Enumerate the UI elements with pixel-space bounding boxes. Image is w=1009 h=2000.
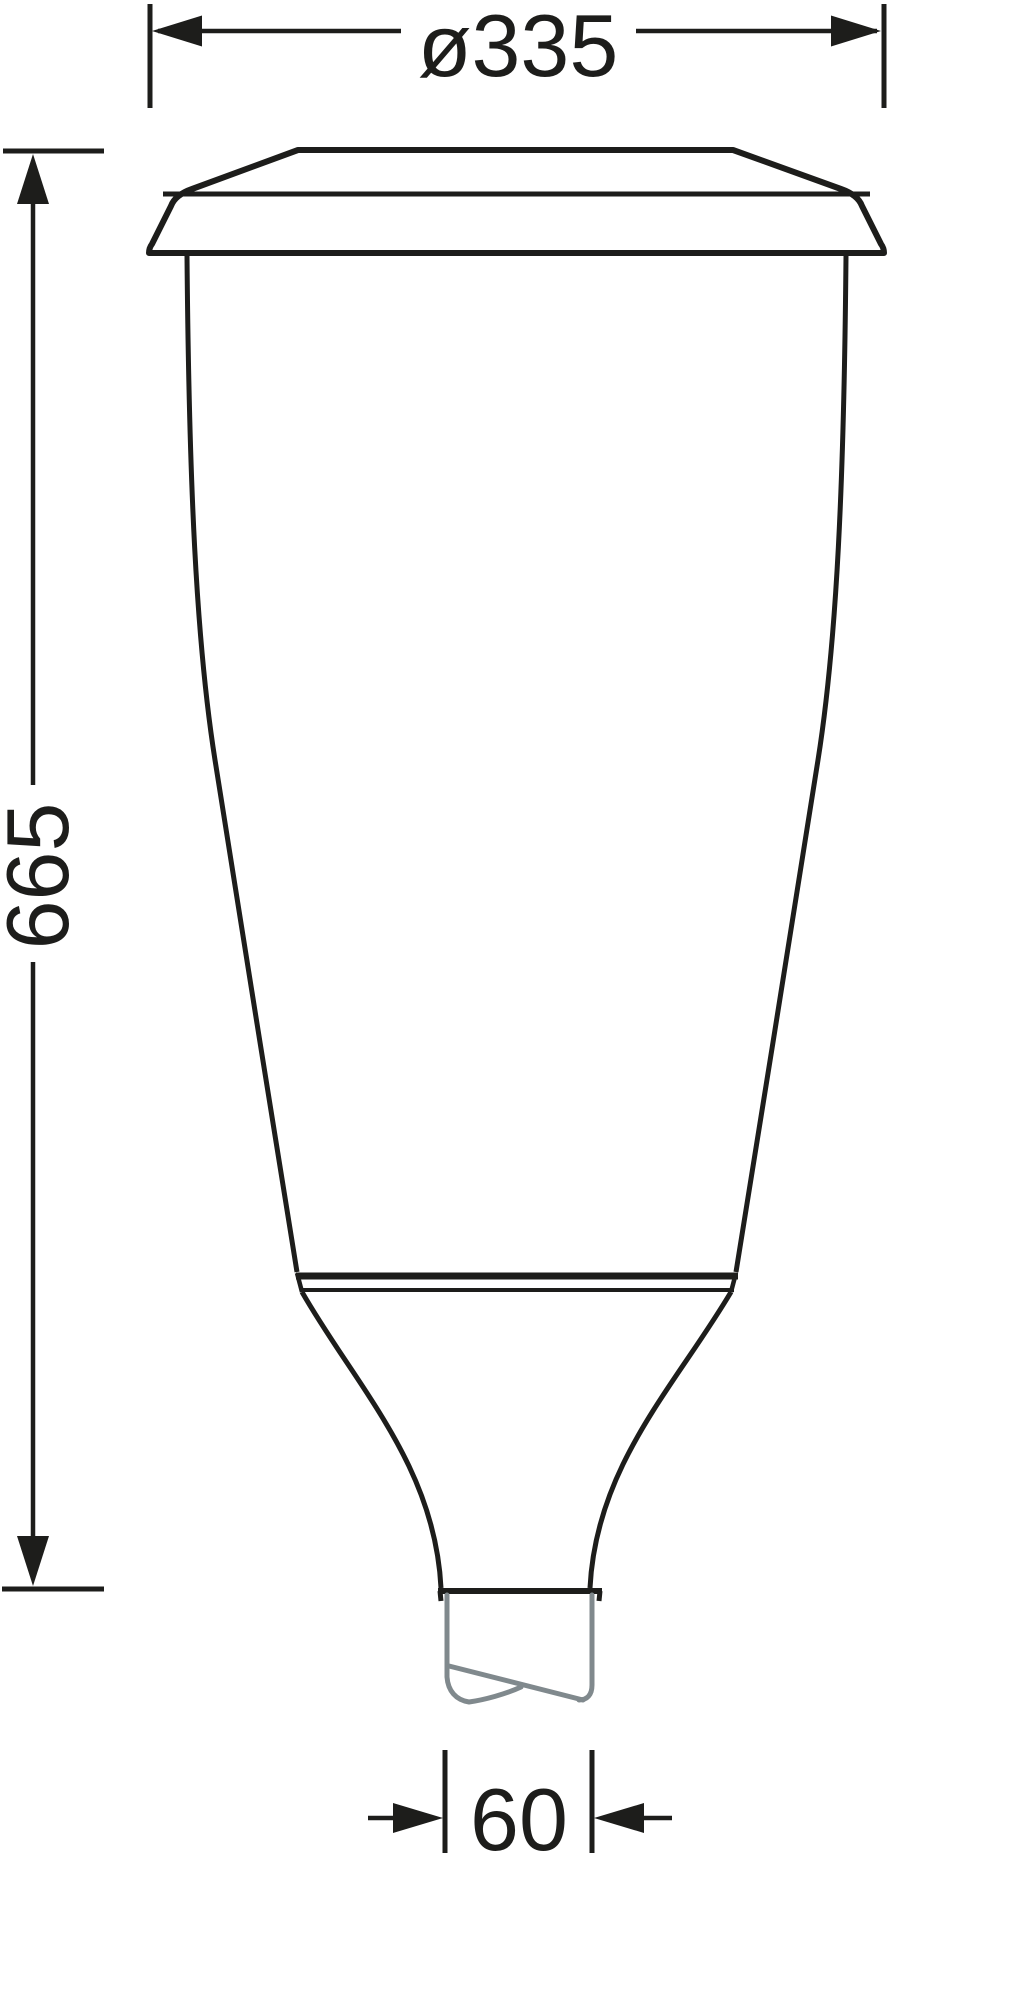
arrowhead-left-icon xyxy=(152,16,202,47)
cap-outline xyxy=(149,150,884,253)
funnel-bottom-right-lip xyxy=(599,1591,600,1601)
funnel-left-edge xyxy=(302,1292,441,1588)
dimension-drawing: ø335 665 xyxy=(0,0,1009,2000)
spigot-right-edge xyxy=(579,1595,592,1700)
spigot-diameter-label: 60 xyxy=(470,1770,568,1869)
dimension-spigot-width: 60 xyxy=(368,1750,672,1869)
funnel-right-edge xyxy=(590,1292,731,1588)
arrowhead-right-icon xyxy=(831,16,881,47)
body-right-edge xyxy=(736,256,846,1272)
drawing-canvas: ø335 665 xyxy=(0,0,1009,2000)
arrowhead-down-icon xyxy=(17,1536,49,1586)
arrowhead-inward-left-icon xyxy=(393,1803,443,1833)
top-diameter-label: ø335 xyxy=(418,0,619,95)
dimension-height: 665 xyxy=(0,151,104,1589)
dimension-top-diameter: ø335 xyxy=(150,0,884,108)
luminaire-outline xyxy=(149,150,884,1601)
arrowhead-up-icon xyxy=(17,154,49,204)
body-left-edge xyxy=(187,256,297,1272)
overall-height-label: 665 xyxy=(0,803,87,950)
funnel-bottom-left-lip xyxy=(440,1591,441,1601)
linework: ø335 665 xyxy=(0,0,884,1869)
spigot-break-diagonal xyxy=(449,1666,583,1700)
spigot-left-edge-with-break-loop xyxy=(447,1595,521,1702)
spigot-tube xyxy=(447,1595,592,1702)
arrowhead-inward-right-icon xyxy=(594,1803,644,1833)
